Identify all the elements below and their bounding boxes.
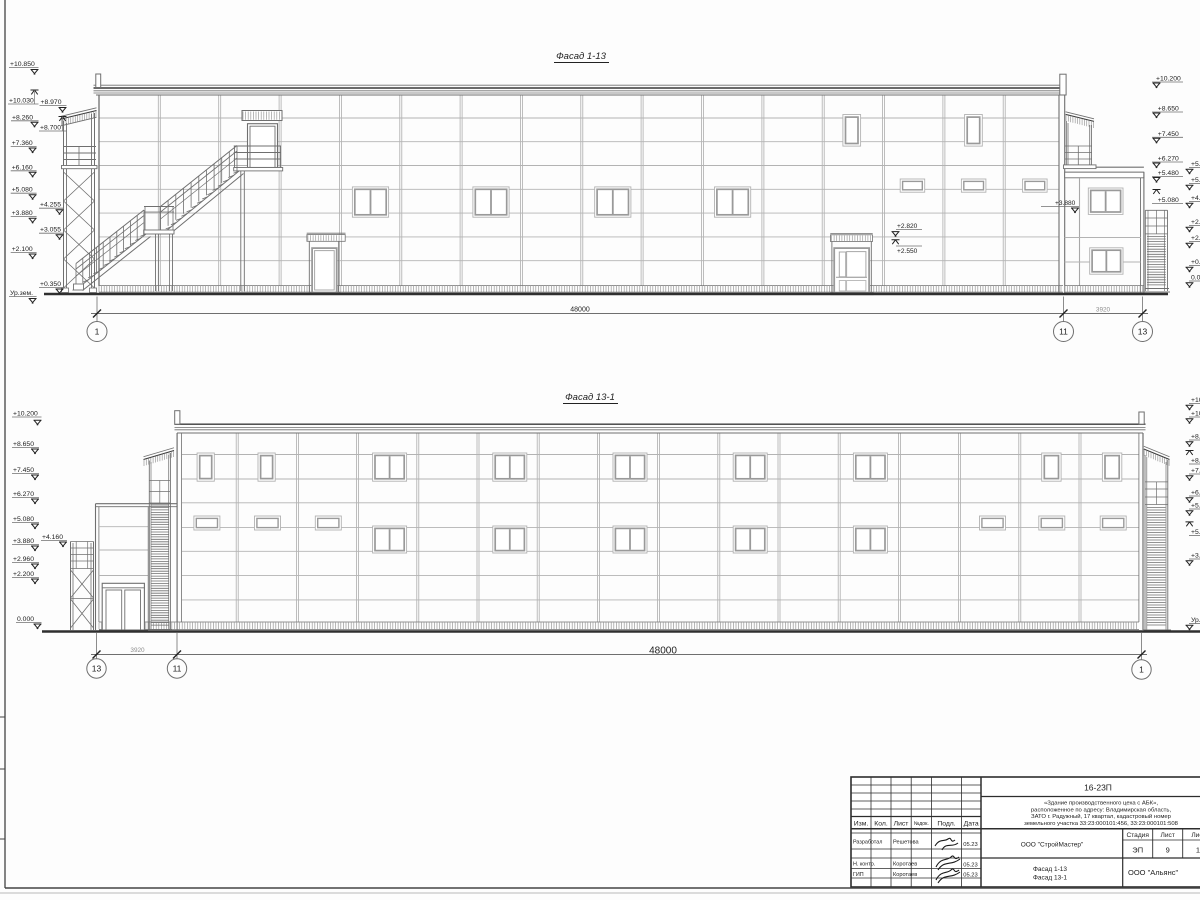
svg-text:Ур.зем.: Ур.зем. <box>10 290 33 297</box>
svg-text:+10.0: +10.0 <box>1191 411 1200 418</box>
svg-text:Кол.: Кол. <box>874 820 888 827</box>
svg-text:+0.35: +0.35 <box>1191 259 1200 266</box>
svg-text:+8.970: +8.970 <box>41 99 62 106</box>
svg-text:+2.960: +2.960 <box>13 556 34 563</box>
svg-text:+0.350: +0.350 <box>40 281 61 288</box>
svg-text:0.000: 0.000 <box>17 616 34 623</box>
svg-text:3920: 3920 <box>130 647 145 654</box>
svg-text:+5.48: +5.48 <box>1191 161 1200 168</box>
svg-text:+8.650: +8.650 <box>1158 106 1179 113</box>
svg-text:11: 11 <box>1059 327 1068 337</box>
svg-text:+4.160: +4.160 <box>42 534 63 541</box>
svg-text:05.23: 05.23 <box>963 863 978 869</box>
svg-text:+6.270: +6.270 <box>1158 156 1179 163</box>
svg-text:+7.450: +7.450 <box>1158 131 1179 138</box>
svg-text:+8.700: +8.700 <box>40 125 61 132</box>
svg-text:Стадия: Стадия <box>1126 832 1149 839</box>
svg-text:+2.10: +2.10 <box>1191 219 1200 226</box>
svg-text:+5.080: +5.080 <box>1158 197 1179 204</box>
svg-text:+6.160: +6.160 <box>12 164 33 171</box>
svg-text:+7.450: +7.450 <box>13 467 34 474</box>
svg-text:+6.270: +6.270 <box>13 491 34 498</box>
svg-text:ООО "Альянс": ООО "Альянс" <box>1128 868 1178 877</box>
svg-text:+3.88: +3.88 <box>1191 553 1200 560</box>
svg-text:+2.82: +2.82 <box>1191 235 1200 242</box>
svg-text:Ур.зем: Ур.зем <box>1191 617 1200 624</box>
svg-text:расположенное по адресу: Влади: расположенное по адресу: Владимирская об… <box>1031 807 1172 813</box>
svg-text:«Здание производственного цеха: «Здание производственного цеха с АБК», <box>1044 801 1158 807</box>
svg-text:ГИП: ГИП <box>853 872 864 878</box>
svg-text:+6.27: +6.27 <box>1191 490 1200 497</box>
svg-text:Лист: Лист <box>894 820 909 827</box>
svg-text:+8.260: +8.260 <box>12 114 33 121</box>
svg-text:1: 1 <box>95 327 100 337</box>
svg-text:Фасад 1-13: Фасад 1-13 <box>1033 866 1067 873</box>
svg-text:Фасад 13-1: Фасад 13-1 <box>1033 874 1067 881</box>
svg-text:+7.45: +7.45 <box>1191 468 1200 475</box>
svg-text:+3.880: +3.880 <box>1055 200 1076 207</box>
svg-text:+10.200: +10.200 <box>13 411 38 418</box>
svg-text:+5.080: +5.080 <box>12 187 33 194</box>
svg-text:+7.360: +7.360 <box>12 140 33 147</box>
svg-text:+10.850: +10.850 <box>10 61 35 68</box>
svg-text:+10.200: +10.200 <box>1156 76 1181 83</box>
svg-text:ЗАТО г. Радужный, 17 квартал,: ЗАТО г. Радужный, 17 квартал, кадастровы… <box>1031 813 1172 820</box>
svg-text:13: 13 <box>1138 327 1148 337</box>
svg-text:0.000: 0.000 <box>1191 275 1200 282</box>
svg-text:+3.880: +3.880 <box>12 210 33 217</box>
svg-text:+2.820: +2.820 <box>897 223 918 230</box>
svg-text:ЭП: ЭП <box>1132 846 1143 855</box>
svg-text:+5.08: +5.08 <box>1191 177 1200 184</box>
svg-text:+8.650: +8.650 <box>13 441 34 448</box>
svg-text:+5.0: +5.0 <box>1191 529 1200 536</box>
svg-text:земельного участка 33:23:00010: земельного участка 33:23:000101:456, 33:… <box>1024 821 1179 827</box>
svg-text:48000: 48000 <box>570 307 590 314</box>
svg-text:Фасад 13-1: Фасад 13-1 <box>565 392 615 403</box>
svg-text:+10.2: +10.2 <box>1191 397 1200 404</box>
svg-text:16-23П: 16-23П <box>1084 783 1112 793</box>
svg-text:48000: 48000 <box>649 646 677 657</box>
svg-text:ООО "СтройМастер": ООО "СтройМастер" <box>1021 841 1084 849</box>
svg-text:+8.65: +8.65 <box>1191 434 1200 441</box>
svg-text:05.23: 05.23 <box>963 842 978 848</box>
svg-text:Фасад 1-13: Фасад 1-13 <box>556 51 606 62</box>
svg-text:+2.100: +2.100 <box>12 246 33 253</box>
svg-text:9: 9 <box>1166 846 1170 855</box>
svg-text:+10.030: +10.030 <box>9 98 34 105</box>
svg-text:+2.200: +2.200 <box>13 571 34 578</box>
svg-text:+3.055: +3.055 <box>40 227 61 234</box>
svg-text:Дата: Дата <box>964 820 979 827</box>
svg-text:Н. контр.: Н. контр. <box>853 862 875 868</box>
svg-text:1: 1 <box>1139 665 1144 675</box>
svg-text:Разработал: Разработал <box>853 840 882 846</box>
svg-text:+5.080: +5.080 <box>13 516 34 523</box>
svg-text:Лис: Лис <box>1191 832 1200 839</box>
svg-text:11: 11 <box>173 664 182 674</box>
svg-text:Решетова: Решетова <box>893 840 920 846</box>
svg-text:+5.480: +5.480 <box>1158 170 1179 177</box>
svg-text:+4.255: +4.255 <box>40 202 61 209</box>
svg-text:Подл.: Подл. <box>937 820 955 827</box>
svg-text:Лист: Лист <box>1161 832 1175 839</box>
svg-text:+3.880: +3.880 <box>13 538 34 545</box>
svg-text:+5.48: +5.48 <box>1191 503 1200 510</box>
svg-text:+4.25: +4.25 <box>1191 195 1200 202</box>
svg-text:3920: 3920 <box>1096 307 1111 314</box>
svg-text:+2.550: +2.550 <box>897 248 918 255</box>
svg-text:№док.: №док. <box>914 821 929 827</box>
svg-text:Изм.: Изм. <box>854 820 869 827</box>
svg-text:Коротаев: Коротаев <box>893 872 917 878</box>
svg-text:05.23: 05.23 <box>963 873 978 879</box>
svg-text:Коротаев: Коротаев <box>893 862 917 868</box>
svg-text:13: 13 <box>92 664 102 674</box>
svg-text:+8.2: +8.2 <box>1191 458 1200 465</box>
svg-text:1: 1 <box>1196 846 1200 855</box>
